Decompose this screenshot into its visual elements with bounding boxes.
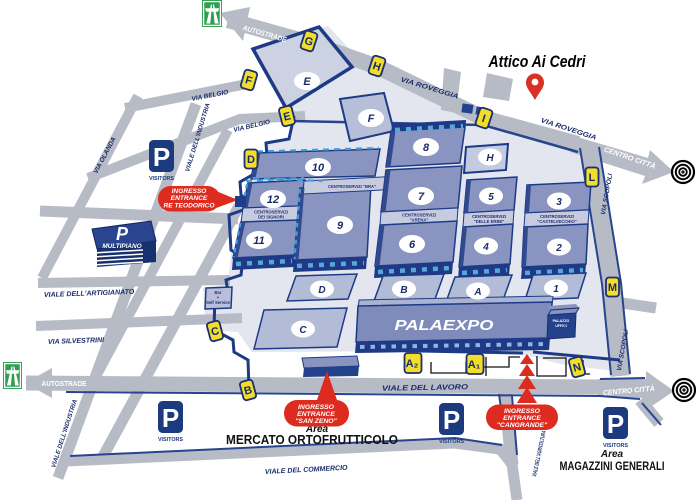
svg-text:VIALE DEL LAVORO: VIALE DEL LAVORO <box>382 382 468 393</box>
svg-text:A₂: A₂ <box>406 358 419 370</box>
svg-text:2: 2 <box>555 243 562 254</box>
svg-text:P: P <box>153 142 170 172</box>
svg-text:B: B <box>400 285 407 296</box>
svg-text:A₁: A₁ <box>468 359 481 371</box>
svg-text:UFFICI: UFFICI <box>555 324 567 328</box>
svg-text:9: 9 <box>337 220 344 232</box>
svg-text:PALAZZO: PALAZZO <box>553 319 570 323</box>
svg-text:"CASTELVECCHIO": "CASTELVECCHIO" <box>537 219 577 224</box>
svg-text:6: 6 <box>409 239 416 251</box>
svg-text:A: A <box>473 287 481 298</box>
svg-text:D: D <box>247 154 255 166</box>
svg-text:3: 3 <box>556 197 562 208</box>
svg-text:1: 1 <box>553 284 559 295</box>
svg-text:P: P <box>116 224 129 244</box>
svg-text:"CANGRANDE": "CANGRANDE" <box>497 422 548 429</box>
svg-text:"DELLE ERBE": "DELLE ERBE" <box>474 219 505 224</box>
svg-text:INGRESSO: INGRESSO <box>172 188 208 195</box>
svg-text:ENTRANCE: ENTRANCE <box>297 411 335 418</box>
svg-text:P: P <box>162 403 179 433</box>
svg-text:10: 10 <box>312 162 325 174</box>
svg-text:"SAN ZENO": "SAN ZENO" <box>295 418 337 425</box>
svg-text:L: L <box>589 172 596 184</box>
svg-text:VISITORS: VISITORS <box>158 437 183 443</box>
svg-text:INGRESSO: INGRESSO <box>504 408 541 415</box>
svg-text:ENTRANCE: ENTRANCE <box>171 195 208 202</box>
svg-text:P: P <box>607 409 624 439</box>
svg-text:H: H <box>486 153 494 164</box>
svg-text:D: D <box>318 285 325 296</box>
svg-text:P: P <box>443 405 460 435</box>
svg-text:MAGAZZINI GENERALI: MAGAZZINI GENERALI <box>560 459 665 473</box>
svg-text:MERCATO ORTOFRUTTICOLO: MERCATO ORTOFRUTTICOLO <box>226 433 398 447</box>
svg-text:AUTOSTRADE: AUTOSTRADE <box>42 379 87 388</box>
svg-text:DEI SIGNORI: DEI SIGNORI <box>258 215 284 220</box>
svg-text:C: C <box>299 325 307 336</box>
svg-text:MULTIPIANO: MULTIPIANO <box>102 243 141 250</box>
svg-text:F: F <box>368 113 375 125</box>
svg-text:5: 5 <box>488 192 494 203</box>
svg-text:PALAEXPO: PALAEXPO <box>395 317 494 334</box>
svg-text:VISITORS: VISITORS <box>149 176 174 182</box>
svg-text:INGRESSO: INGRESSO <box>298 404 335 411</box>
svg-text:VISITORS: VISITORS <box>439 439 464 445</box>
svg-text:7: 7 <box>418 191 425 203</box>
svg-text:CENTROSERVIZI "BRA": CENTROSERVIZI "BRA" <box>328 184 376 189</box>
svg-text:M: M <box>608 282 617 294</box>
svg-text:Attico Ai Cedri: Attico Ai Cedri <box>488 53 586 71</box>
svg-text:12: 12 <box>267 194 279 206</box>
svg-text:8: 8 <box>423 142 430 154</box>
svg-text:Self Service: Self Service <box>206 300 230 305</box>
svg-text:ENTRANCE: ENTRANCE <box>503 415 541 422</box>
svg-text:E: E <box>303 76 311 88</box>
svg-text:RE TEODORICO: RE TEODORICO <box>164 203 216 210</box>
svg-text:11: 11 <box>253 235 264 247</box>
svg-text:VISITORS: VISITORS <box>603 443 628 449</box>
svg-text:4: 4 <box>482 242 489 253</box>
svg-text:"ARENA": "ARENA" <box>410 218 429 223</box>
